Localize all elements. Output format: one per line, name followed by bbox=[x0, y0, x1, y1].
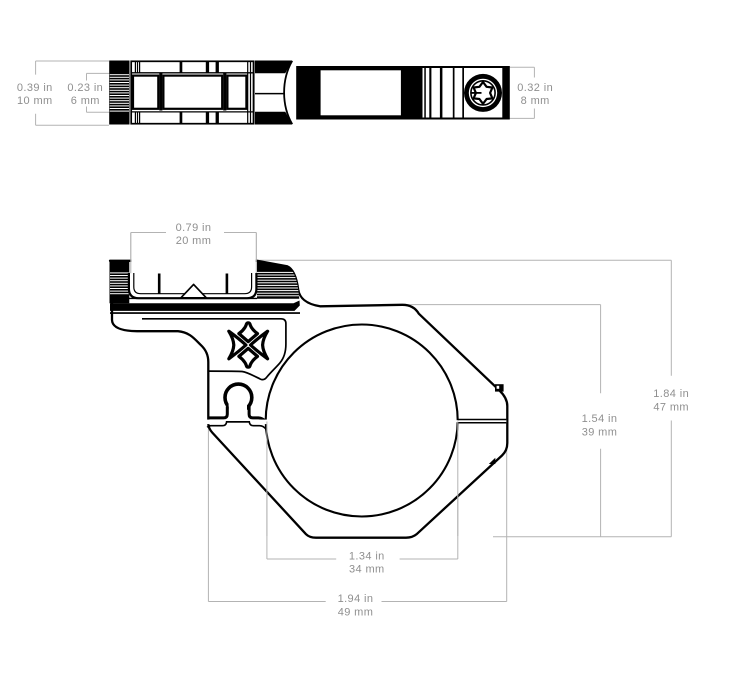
svg-text:10 mm: 10 mm bbox=[17, 95, 53, 107]
svg-text:1.94 in: 1.94 in bbox=[338, 593, 374, 605]
svg-text:6 mm: 6 mm bbox=[71, 95, 100, 107]
svg-text:8 mm: 8 mm bbox=[521, 95, 550, 107]
svg-text:0.23 in: 0.23 in bbox=[67, 82, 103, 94]
svg-text:34 mm: 34 mm bbox=[349, 563, 385, 575]
svg-text:39 mm: 39 mm bbox=[582, 427, 618, 439]
svg-text:0.39 in: 0.39 in bbox=[17, 82, 53, 94]
svg-text:1.84 in: 1.84 in bbox=[653, 388, 689, 400]
svg-text:47 mm: 47 mm bbox=[653, 402, 689, 414]
svg-text:20 mm: 20 mm bbox=[176, 235, 212, 247]
svg-text:49 mm: 49 mm bbox=[338, 606, 374, 618]
svg-text:0.79 in: 0.79 in bbox=[176, 222, 212, 234]
svg-text:0.32 in: 0.32 in bbox=[517, 82, 553, 94]
svg-text:1.54 in: 1.54 in bbox=[582, 413, 618, 425]
svg-text:1.34 in: 1.34 in bbox=[349, 550, 385, 562]
